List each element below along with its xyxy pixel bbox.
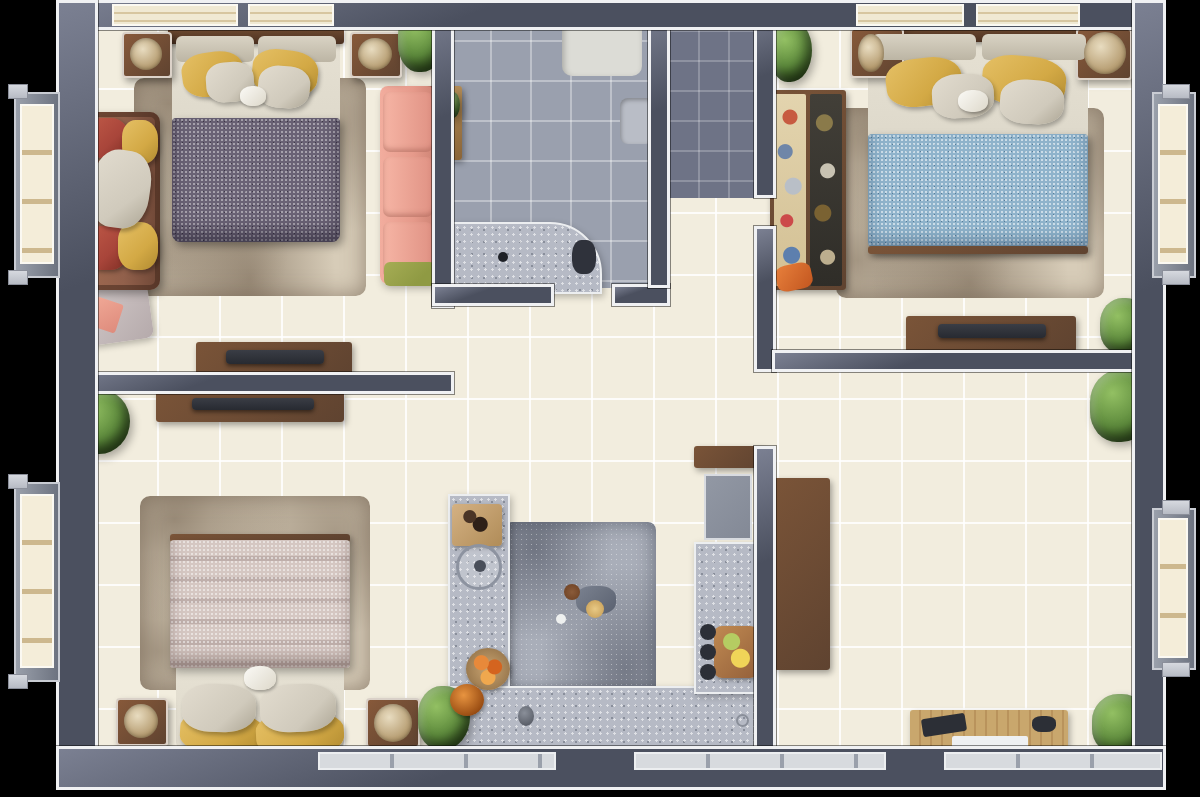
bed-tl-duvet <box>172 118 340 242</box>
decor-bowl <box>858 34 884 72</box>
basket <box>1084 32 1126 74</box>
sofa-pink-seat <box>383 92 433 152</box>
bed-tr-pillow-gray <box>999 78 1066 126</box>
sofa-tl-cushion-yellow <box>118 222 158 270</box>
bed-bl-pillow-small <box>244 666 276 690</box>
bed-tl-pillow-small <box>240 86 266 106</box>
wall-divider-right <box>772 350 1166 372</box>
wall-cap <box>8 674 28 689</box>
fruit-bowl <box>466 648 510 690</box>
floor-plan-stage <box>0 0 1200 797</box>
sofa-pink-seat <box>383 157 433 217</box>
bed-tr-footboard <box>868 246 1088 254</box>
kitchen-faucet <box>474 560 486 572</box>
window-left-bottom <box>20 494 54 668</box>
tv-bedroom-tl <box>226 350 324 364</box>
wall-bathroom-right <box>648 0 670 288</box>
wall-outer-left <box>56 0 98 756</box>
sofa-pink-green-throw <box>384 262 436 286</box>
tv-bedroom-bl <box>192 398 314 410</box>
wall-bathroom-left <box>432 0 454 308</box>
bed-tr-duvet <box>868 134 1088 250</box>
vanity-faucet <box>498 252 508 262</box>
kitchen-knob <box>518 706 534 726</box>
wall-divider-left <box>56 372 454 394</box>
board-items <box>462 510 488 532</box>
window-top <box>856 4 964 26</box>
coffee-table-dot <box>556 614 566 624</box>
bed-tl-pillow-gray <box>256 64 311 110</box>
wall-cap <box>1162 270 1190 285</box>
bed-tr-back-cushion <box>872 34 976 60</box>
window-top <box>112 4 238 26</box>
window-bottom <box>318 752 556 770</box>
bed-bl-pillow-gray <box>259 683 337 734</box>
bed-tr-pillow-small <box>958 90 988 112</box>
bath-accessory <box>572 240 596 274</box>
counter-jar-dark <box>700 644 716 660</box>
serving-tray <box>714 626 758 678</box>
tv-bedroom-tr <box>938 324 1046 338</box>
sideboard <box>774 478 830 670</box>
bed-bl-pillow-gray <box>181 683 257 734</box>
wardrobe-right-panel <box>810 94 842 286</box>
console-item-dark <box>1032 716 1056 732</box>
window-right-bottom <box>1158 518 1188 658</box>
counter-drain <box>736 714 749 727</box>
refrigerator-panel <box>704 474 752 540</box>
window-top <box>248 4 334 26</box>
wall-dining-left <box>754 446 776 750</box>
wall-cap <box>8 270 28 285</box>
counter-jar-dark <box>700 664 716 680</box>
wall-cap <box>1162 662 1190 677</box>
window-top <box>976 4 1080 26</box>
jar <box>450 684 484 716</box>
counter-jar-dark <box>700 624 716 640</box>
wall-cap <box>1162 84 1190 99</box>
window-left-top <box>20 104 54 264</box>
wall-bathroom-bottom-a <box>432 284 554 306</box>
window-bottom <box>634 752 886 770</box>
wall-cap <box>8 474 28 489</box>
basket <box>374 704 412 742</box>
bed-bl-duvet <box>170 540 350 668</box>
wall-cap <box>1162 500 1190 515</box>
decor-bowl <box>124 704 158 738</box>
wall-cap <box>8 84 28 99</box>
decor-bowl <box>358 38 392 70</box>
window-bottom <box>944 752 1162 770</box>
coffee-table-cup <box>586 600 604 618</box>
wardrobe-left-panel <box>774 94 806 286</box>
coffee-table-cup <box>564 584 580 600</box>
decor-bowl <box>130 38 162 70</box>
window-right-top <box>1158 104 1188 264</box>
